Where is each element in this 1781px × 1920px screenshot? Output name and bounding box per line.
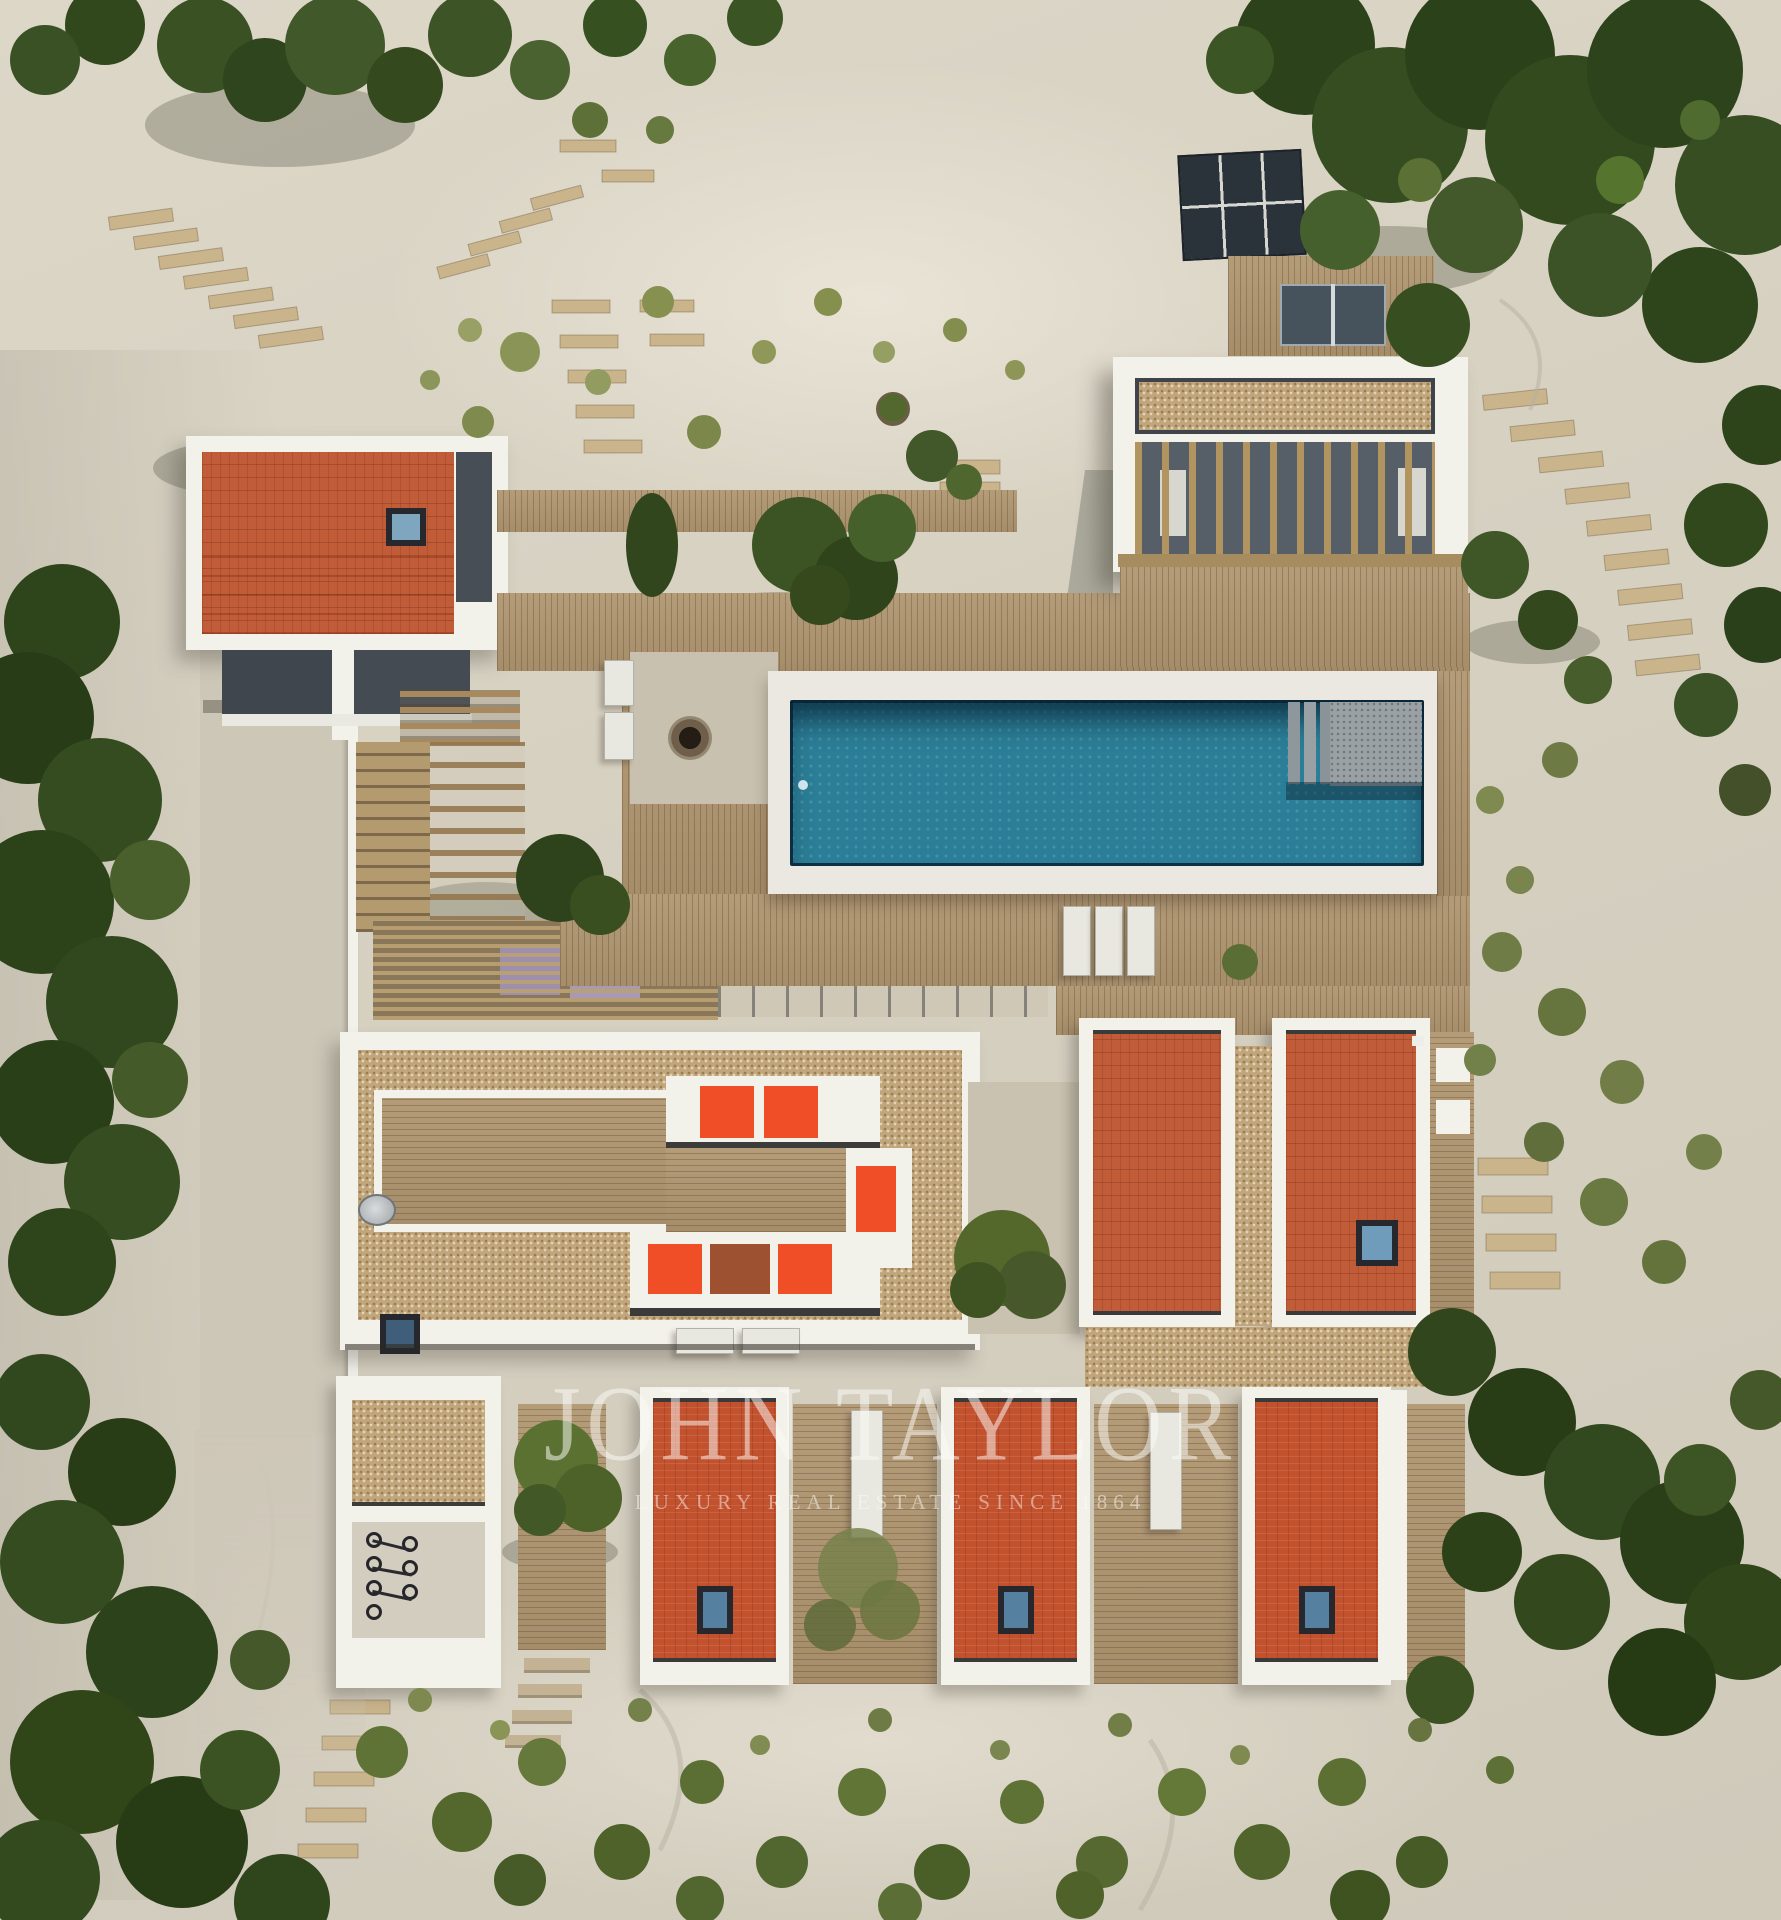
watermark-title: JOHN TAYLOR [0,1362,1781,1485]
tree-cluster-top [10,0,783,144]
shrubs-right [1222,742,1722,1284]
watermark-subtitle: LUXURY REAL ESTATE SINCE 1864 [0,1490,1781,1515]
tree-cluster-right-edge [1461,483,1781,816]
bottom-shrub-row [356,1688,1514,1920]
tree-cluster-left [0,564,190,1316]
vegetation-layer [0,0,1781,1920]
dry-shrubs [420,286,1025,449]
aerial-villa-photo: JOHN TAYLOR LUXURY REAL ESTATE SINCE 186… [0,0,1781,1920]
tree-cluster-top-right [1206,0,1781,465]
